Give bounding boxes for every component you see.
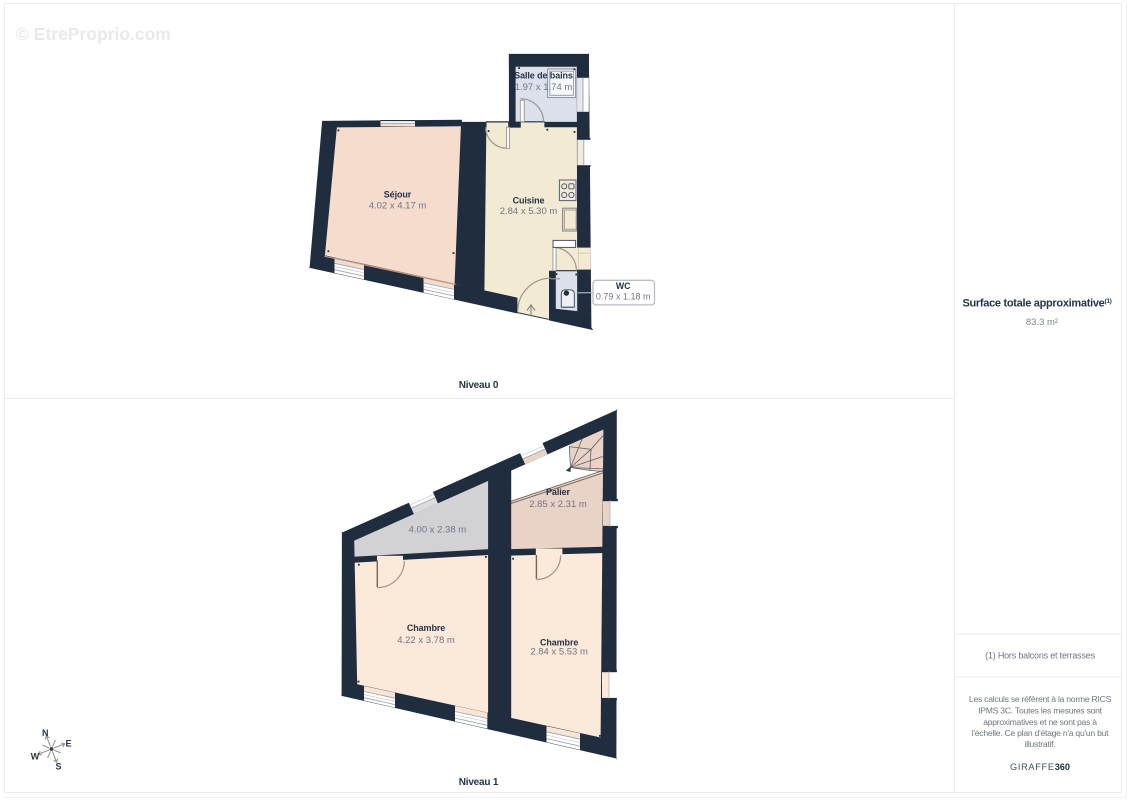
svg-text:l'échelle. Ce plan d'étage n'a: l'échelle. Ce plan d'étage n'a qu'un but [972,728,1109,738]
svg-text:approximatives et ne sont pas: approximatives et ne sont pas à [983,717,1097,727]
svg-text:Cuisine: Cuisine [513,196,545,206]
svg-text:GIRAFFE360: GIRAFFE360 [1010,762,1070,772]
svg-text:WC: WC [616,281,631,291]
svg-text:© EtreProprio.com: © EtreProprio.com [16,24,171,44]
svg-text:illustratif.: illustratif. [1025,739,1056,749]
svg-text:2.85 x 2.31 m: 2.85 x 2.31 m [529,499,587,510]
svg-text:IPMS 3C. Toutes les mesures so: IPMS 3C. Toutes les mesures sont [978,705,1103,715]
svg-text:4.02 x 4.17 m: 4.02 x 4.17 m [369,201,427,212]
svg-text:0.79 x 1.18 m: 0.79 x 1.18 m [596,292,651,302]
svg-text:E: E [65,738,71,748]
svg-text:1.97 x 1.74 m: 1.97 x 1.74 m [515,82,573,93]
svg-text:Niveau 0: Niveau 0 [459,380,499,391]
svg-text:Niveau 1: Niveau 1 [459,777,499,788]
svg-text:4.00 x 2.38 m: 4.00 x 2.38 m [409,525,467,536]
svg-text:2.84 x 5.53 m: 2.84 x 5.53 m [530,646,588,657]
svg-text:83.3 m²: 83.3 m² [1026,317,1058,328]
svg-text:N: N [42,728,49,738]
svg-text:(1) Hors balcons et terrasses: (1) Hors balcons et terrasses [985,650,1095,660]
svg-text:Palier: Palier [546,487,571,497]
svg-text:Chambre: Chambre [407,623,445,633]
svg-text:4.22 x 3.78 m: 4.22 x 3.78 m [397,635,455,646]
svg-text:Les calculs se réfèrent à la n: Les calculs se réfèrent à la norme RICS [969,694,1112,704]
svg-text:2.84 x 5.30 m: 2.84 x 5.30 m [500,206,558,217]
svg-text:S: S [55,761,61,771]
svg-text:Séjour: Séjour [384,190,412,200]
svg-text:Salle de bains: Salle de bains [514,71,573,81]
svg-text:Surface totale approximative(1: Surface totale approximative(1) [962,297,1111,309]
svg-text:W: W [31,752,40,762]
